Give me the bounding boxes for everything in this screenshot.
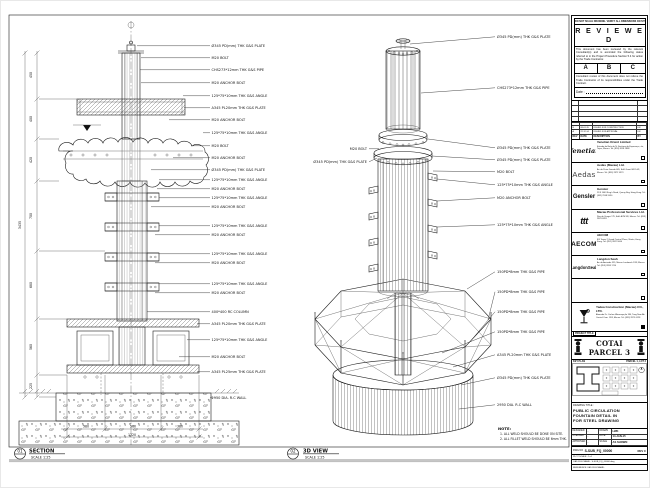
iso-view: Ø345 PD(mm) THK G&S PLATE CHS273*12mm TH… [313, 34, 567, 441]
section-callouts: Ø345 PD(mm) THK G&S PLATE M20 BOLT CHS27… [212, 43, 268, 400]
company-name: AECOM [597, 234, 646, 237]
company-address: 8/F Tower 2 Grand Central Plaza, Shatin,… [597, 239, 646, 244]
grade-c: C [621, 64, 644, 73]
status-checkbox [641, 226, 645, 230]
callout-label: M20 BOLT [497, 170, 515, 174]
note-line: 1. ALL WELD SHOULD BE DONE ON SITE. [500, 432, 563, 436]
blank-revision-table [572, 100, 647, 122]
drawing-title-line: FOR STEEL DRAWING [573, 418, 646, 423]
contractor-address: Alameda Dr. Carlos d'Assumpção 180, Tong… [596, 314, 645, 319]
callout-label: 125*75*10mm THK G&S ANGLE [212, 94, 268, 98]
view-number: 02 [290, 449, 296, 454]
callout-label: M20 BOLT [350, 147, 368, 151]
callout-label: 150PD*8mm THK G&S PIPE [497, 330, 545, 334]
company-name: Aedas (Macau) Ltd. [597, 164, 646, 167]
dwg-revision: REV C [637, 449, 646, 453]
callout-label: A345 PL20mm THK G&S PLATE [212, 106, 266, 110]
stamp-paragraph-2: Consultant review of this document does … [575, 74, 645, 87]
company-address: Av. da Amizade 555, Macau Landmark 13/F,… [597, 262, 646, 267]
consultant-row-blank [572, 279, 647, 302]
rev-header-cell: REV [572, 135, 580, 139]
callout-label: 150PD*8mm THK G&S PIPE [497, 270, 545, 274]
view-scale: SCALE 1:25 [31, 456, 51, 460]
callout-label: 125*75*10mm THK G&S ANGLE [212, 338, 268, 342]
title-block: DO NOT SCALE DRAWING. VERIFY ALL DIMENSI… [571, 15, 648, 471]
status-checkbox [641, 156, 645, 160]
status-checkbox [641, 273, 645, 277]
callout-label: A345 PL20mm THK G&S PLATE [497, 353, 551, 357]
company-address: Rua de Xangai 175, Edif. ACM 9/F, Macau.… [597, 216, 646, 221]
consultant-row-venetian: Venetian Venetian Orient Limited Estrada… [572, 140, 647, 163]
dim-label: 225 [29, 383, 33, 389]
status-checkbox [641, 250, 645, 254]
dim-label: 420 [29, 157, 33, 163]
consultant-row-aedas: Aedas Aedas (Macau) Ltd. Av. da Praia Gr… [572, 163, 647, 186]
status-checkbox [641, 296, 645, 300]
company-address: 21/F 1063 King's Road, Quarry Bay, Hong … [597, 192, 646, 197]
consultant-row-langdonseah: LangdonSeah Langdon Seah Av. da Amizade … [572, 256, 647, 279]
status-checkbox [641, 203, 645, 207]
rev-cell: LW [637, 130, 647, 133]
callout-label: M20 ANCHOR BOLT [212, 233, 247, 237]
callout-label: A345 PL25mm THK G&S PLATE [212, 370, 266, 374]
callout-label: 125*75*10mm THK G&S ANGLE [212, 131, 268, 135]
callout-label: M20 ANCHOR BOLT [212, 355, 247, 359]
callout-label: M20 ANCHOR BOLT [212, 205, 247, 209]
stamp-date-line [586, 91, 643, 94]
field-value: AS SHOWN [612, 440, 647, 446]
callout-label: 125*75*10mm THK G&S ANGLE [212, 178, 268, 182]
callout-label: CHS273*12mm THK G&S PIPE [497, 86, 550, 90]
rev-header-cell: DATE [580, 135, 593, 139]
aecom-logo: AECOM [572, 233, 596, 255]
drawing-title-label: DRAWING TITLE : [573, 404, 646, 407]
callout-label: Ø345 PD(mm) THK G&S PLATE [497, 157, 551, 162]
key-plan-map [572, 363, 647, 397]
callout-label: M20 ANCHOR BOLT [212, 187, 247, 191]
rev-header-cell: BY [637, 135, 647, 139]
callout-label: 125*75*10mm THK G&S ANGLE [212, 252, 268, 256]
approval-fields: DESIGNED - DRAWN LWK CHECKED - DATE 14-J… [572, 429, 647, 447]
consultant-row-mps: ttt Macau Professional Services Ltd. Rua… [572, 210, 647, 233]
company-address: Av. da Praia Grande 665, Edif. Great Wil… [597, 169, 646, 174]
callout-label: 125*75*10mm THK G&S ANGLE [497, 183, 553, 187]
dim-label: 680 [29, 282, 33, 288]
callout-label: Ø345 PD(mm) THK G&S PLATE [497, 34, 551, 39]
field-value: - [587, 440, 599, 446]
note-title: NOTE: [498, 426, 512, 431]
callout-label: Ø345 PD(mm) THK G&S PLATE [497, 375, 551, 380]
gensler-logo: Gensler [572, 186, 596, 208]
view-titles: 01 SECTION SCALE 1:25 02 3D VIEW SCALE 1… [15, 448, 340, 460]
table-divider [637, 101, 638, 121]
iso-callouts: Ø345 PD(mm) THK G&S PLATE CHS273*12mm TH… [313, 34, 552, 407]
dim-total-label: 3435 [18, 221, 22, 229]
callout-label: 2950 DIA. R.C WALL [497, 403, 532, 407]
drawing-sheet: 450 400 420 700 680 560 225 3435 380 560… [0, 0, 650, 488]
callout-label: 125*75*10mm THK G&S ANGLE [497, 223, 553, 227]
callout-label: Ø345 PD(mm) THK G&S PLATE [212, 43, 266, 48]
project-title: COTAI PARCEL 3 [582, 339, 637, 357]
stamp-date-row: Date : [575, 87, 645, 97]
contractor-row: Yadea Construction (Macau) CO., LTD. Ala… [572, 303, 647, 332]
dim-label: 380 [177, 425, 183, 429]
emblem-icon [574, 339, 582, 356]
company-name: Venetian Orient Limited [597, 141, 646, 144]
dim-label: 560 [29, 344, 33, 350]
aedas-logo: Aedas [572, 163, 596, 185]
view-number: 01 [17, 449, 23, 454]
pipe-bundle [386, 39, 420, 133]
company-address: Estrada da Baía de N. Senhora da Esperan… [597, 146, 646, 151]
dim-total-label: 1320 [128, 433, 136, 437]
rev-header-cell: DESCRIPTION [593, 135, 637, 139]
dwg-label: DWG NO [573, 449, 583, 452]
company-name: Macau Professional Services Ltd. [597, 211, 646, 214]
status-checkbox-filled [641, 325, 645, 329]
stamp-grade-row: A B C [575, 64, 645, 74]
callout-label: Ø345 PD(mm) THK G&S PLATE [212, 167, 266, 172]
review-stamp: DO NOT SCALE DRAWING. VERIFY ALL DIMENSI… [574, 18, 646, 99]
contractor-logo-icon [573, 305, 595, 330]
view-scale: SCALE 1:25 [305, 456, 325, 460]
platform-truss [314, 279, 492, 385]
callout-label: Ø345 PD(mm) THK G&S PLATE [497, 145, 551, 150]
callout-label: M20 ANCHOR BOLT [212, 81, 247, 85]
rev-cell: 22-12-14 [580, 130, 593, 133]
field-label: SCALE [599, 440, 612, 446]
dim-label: 400 [29, 116, 33, 122]
stamp-paragraph-1: This document has been reviewed by the r… [575, 47, 645, 64]
callout-label: 125*75*10mm THK G&S ANGLE [212, 196, 268, 200]
section-leader-lines [137, 46, 213, 398]
drawing-canvas: 450 400 420 700 680 560 225 3435 380 560… [1, 1, 650, 488]
general-notes: NOTE: 1. ALL WELD SHOULD BE DONE ON SITE… [498, 426, 567, 441]
grade-b: B [598, 64, 621, 73]
grade-a: A [575, 64, 598, 73]
callout-label: 2950 DIA. R.C WALL [212, 396, 247, 400]
callout-label: CHS273*12mm THK G&S PIPE [212, 68, 265, 72]
rev-cell: LW [637, 126, 647, 129]
rev-cell: ISSUED FOR APPROVAL [593, 130, 637, 133]
callout-label: 125*75*10mm THK G&S ANGLE [212, 224, 268, 228]
field-label: APPROVED [572, 440, 587, 446]
callout-label: M20 ANCHOR BOLT [212, 261, 247, 265]
callout-label: 400*400 RC COLUMN [212, 310, 250, 314]
callout-label: 150PD*8mm THK G&S PIPE [497, 290, 545, 294]
rev-cell: 08-01-15 [580, 126, 593, 129]
dwg-number-row: DWG NO S-SUB_FQ_00000 REV C [572, 447, 647, 455]
consultant-row-gensler: Gensler Gensler 21/F 1063 King's Road, Q… [572, 186, 647, 209]
callout-label: M20 ANCHOR BOLT [497, 196, 532, 200]
callout-label: M20 BOLT [212, 56, 230, 60]
venetian-logo: Venetian [572, 140, 596, 162]
callout-label: M20 ANCHOR BOLT [212, 291, 247, 295]
callout-label: M20 ANCHOR BOLT [212, 156, 247, 160]
callout-label: M20 ANCHOR BOLT [212, 118, 247, 122]
level-marker-icon [83, 125, 91, 131]
blank-row [572, 117, 647, 123]
contractor-name: Yadea Construction (Macau) CO., LTD. [596, 306, 645, 313]
key-plan: KEY PLAN PARCEL 1, LOT 2 [572, 360, 647, 403]
consultant-row-aecom: AECOM AECOM 8/F Tower 2 Grand Central Pl… [572, 233, 647, 256]
note-line: 2. ALL FILLET WELD SHOULD BE 6mm THK. [500, 437, 567, 441]
dwg-number: S-SUB_FQ_00000 [585, 449, 636, 453]
table-divider [578, 101, 579, 121]
callout-label: Ø345 PD(mm) THK G&S PLATE [313, 159, 367, 164]
callout-label: 150PD*8mm THK G&S PIPE [497, 310, 545, 314]
project-title-banner: COTAI PARCEL 3 [572, 337, 647, 360]
project-title-label: PROJECT TITLE [573, 331, 596, 336]
rev-cell: A [572, 130, 580, 133]
status-checkbox [641, 180, 645, 184]
callout-label: 125*75*10mm THK G&S ANGLE [212, 282, 268, 286]
reviewed-stamp-title: R E V I E W E D [575, 25, 645, 47]
rev-cell: ISSUED FOR CONSTRUCTION [593, 126, 637, 129]
drawing-title-block: DRAWING TITLE : PUBLIC CIRCULATION FOUNT… [572, 403, 647, 429]
emblem-icon [637, 339, 645, 356]
dim-label: 380 [83, 425, 89, 429]
dim-label: 450 [29, 72, 33, 78]
callout-label: M20 BOLT [212, 144, 230, 148]
company-name: Langdon Seah [597, 258, 646, 261]
callout-label: A345 PL20mm THK G&S PLATE [212, 322, 266, 326]
blank-logo [572, 279, 596, 301]
langdonseah-logo: LangdonSeah [572, 256, 596, 278]
mps-logo: ttt [572, 210, 596, 232]
dim-label: 700 [29, 213, 33, 219]
company-name: Gensler [597, 188, 646, 191]
tower-shaft [378, 159, 428, 291]
stamp-date-label: Date : [576, 90, 585, 94]
section-view: 450 400 420 700 680 560 225 3435 380 560… [18, 21, 267, 445]
dim-label: 560 [130, 425, 136, 429]
rev-cell: B [572, 126, 580, 129]
reference-cad-row: REFERENCE CAD FILE NAME : [572, 465, 647, 470]
